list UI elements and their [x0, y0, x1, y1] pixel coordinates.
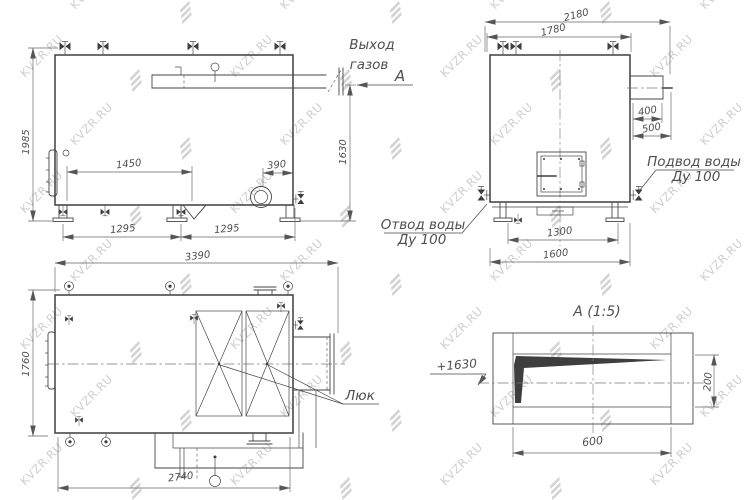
watermark-text: KVZR.RU	[437, 168, 485, 216]
water-outlet-valve-icon	[478, 187, 491, 201]
watermark-text: KVZR.RU	[697, 0, 745, 12]
svg-text:KVZR.RU: KVZR.RU	[17, 168, 65, 216]
svg-text:KVZR.RU: KVZR.RU	[277, 0, 325, 12]
svg-text:KVZR.RU: KVZR.RU	[647, 32, 695, 80]
watermark-text: KVZR.RU	[697, 236, 745, 284]
watermark-text: KVZR.RU	[277, 100, 325, 148]
dim-body-length: 2740	[167, 471, 194, 485]
gas-outlet-label-line1: Выход	[349, 37, 395, 53]
elevation-mark: +1630	[436, 356, 478, 374]
flanged-pipe-top	[254, 287, 276, 295]
elevation-callout: +1630	[430, 356, 486, 385]
svg-text:KVZR.RU: KVZR.RU	[67, 100, 115, 148]
sensor-icon	[211, 63, 219, 71]
detail-title: А (1:5)	[572, 304, 620, 320]
watermark-logo-icon	[124, 341, 147, 364]
watermark-logo-icon	[594, 409, 617, 432]
hatch-label: Люк	[344, 388, 376, 404]
watermark-logo-icon	[174, 273, 197, 296]
fitting-icon	[66, 433, 75, 446]
svg-text:KVZR.RU: KVZR.RU	[67, 236, 115, 284]
svg-text:KVZR.RU: KVZR.RU	[227, 440, 275, 488]
watermark-logo-icon	[544, 205, 567, 228]
svg-text:KVZR.RU: KVZR.RU	[67, 0, 115, 12]
svg-text:KVZR.RU: KVZR.RU	[697, 0, 745, 12]
watermark-logo-icon	[384, 273, 407, 296]
hatch-left	[196, 311, 242, 416]
dim-detail-width: 600	[581, 434, 603, 449]
watermark-logo-icon	[174, 409, 197, 432]
watermark-text: KVZR.RU	[487, 372, 535, 420]
watermark-text: KVZR.RU	[17, 32, 65, 80]
valve-icon	[190, 315, 198, 324]
dim-overall-length: 3390	[184, 250, 211, 264]
valve-icon	[188, 42, 199, 56]
svg-text:KVZR.RU: KVZR.RU	[487, 0, 535, 12]
svg-text:KVZR.RU: KVZR.RU	[437, 440, 485, 488]
valve-icon	[293, 318, 304, 330]
valve-icon	[608, 42, 619, 56]
watermark-text: KVZR.RU	[67, 100, 115, 148]
watermark-text: KVZR.RU	[227, 440, 275, 488]
water-inlet-label-line2: Ду 100	[671, 169, 721, 185]
section-arrow-label: А	[394, 67, 405, 85]
watermark-logo-icon	[334, 205, 357, 228]
svg-text:KVZR.RU: KVZR.RU	[17, 304, 65, 352]
watermark-text: KVZR.RU	[647, 304, 695, 352]
watermark-logo-icon	[544, 69, 567, 92]
watermark-text: KVZR.RU	[697, 100, 745, 148]
dim-flue-width: 400	[637, 104, 658, 118]
svg-text:KVZR.RU: KVZR.RU	[487, 236, 535, 284]
watermark-logo-icon	[384, 1, 407, 24]
gas-outlet-label-line2: газов	[350, 57, 389, 73]
valve-icon	[511, 42, 522, 56]
dim-height: 1985	[21, 129, 32, 154]
svg-text:KVZR.RU: KVZR.RU	[17, 440, 65, 488]
valve-icon	[101, 205, 110, 216]
water-inlet-callout: Подвод воды Ду 100	[640, 154, 741, 190]
water-outlet-label-line1: Отвод воды	[381, 217, 466, 233]
dim-detail-height: 200	[702, 372, 714, 392]
manhole-edge-top	[45, 332, 55, 389]
dim-valve-spacing: 1450	[116, 158, 142, 172]
dim-flue-axis-height: 1630	[338, 139, 349, 164]
dim-overall-width: 2180	[563, 7, 590, 24]
svg-text:KVZR.RU: KVZR.RU	[17, 32, 65, 80]
watermark-text: KVZR.RU	[437, 440, 485, 488]
top-view: 3390 1760 2740 Люк	[21, 250, 379, 492]
svg-text:KVZR.RU: KVZR.RU	[697, 100, 745, 148]
watermark-logo-icon	[544, 477, 567, 500]
detail-dimensions: 200 600	[513, 355, 719, 457]
svg-text:KVZR.RU: KVZR.RU	[697, 236, 745, 284]
watermark-text: KVZR.RU	[647, 32, 695, 80]
watermark-text: KVZR.RU	[487, 0, 535, 12]
svg-text:KVZR.RU: KVZR.RU	[487, 372, 535, 420]
svg-text:KVZR.RU: KVZR.RU	[277, 100, 325, 148]
weld-wedge	[514, 356, 667, 403]
watermark-logo-icon	[124, 477, 147, 500]
flue-duct-front	[627, 76, 672, 99]
watermark-logo-icon	[174, 1, 197, 24]
watermark-text: KVZR.RU	[17, 304, 65, 352]
watermark-logo-icon	[174, 137, 197, 160]
fitting-icon	[102, 433, 111, 446]
watermark-text: KVZR.RU	[227, 32, 275, 80]
svg-text:KVZR.RU: KVZR.RU	[487, 100, 535, 148]
svg-text:KVZR.RU: KVZR.RU	[647, 440, 695, 488]
dim-burner-offset: 390	[267, 159, 287, 172]
fitting-icon	[166, 282, 175, 295]
furnace-door	[537, 152, 586, 196]
valve-icon	[293, 191, 304, 204]
water-outlet-label-line2: Ду 100	[397, 232, 447, 248]
dim-body-width: 1780	[540, 22, 567, 39]
watermark-text: KVZR.RU	[67, 0, 115, 12]
svg-text:KVZR.RU: KVZR.RU	[437, 304, 485, 352]
dim-base-width: 1600	[542, 248, 569, 262]
watermark-layer: KVZR.RUKVZR.RUKVZR.RUKVZR.RUKVZR.RUKVZR.…	[0, 0, 750, 500]
dim-base-left: 1295	[110, 223, 136, 236]
water-inlet-valve-icon	[630, 187, 643, 201]
valve-icon	[275, 42, 286, 56]
svg-text:KVZR.RU: KVZR.RU	[67, 372, 115, 420]
gas-outlet-callout: Выход газов А	[349, 37, 413, 85]
dim-feet-span: 1300	[546, 226, 573, 240]
svg-text:KVZR.RU: KVZR.RU	[227, 32, 275, 80]
fitting-icon	[284, 282, 293, 295]
watermark-logo-icon	[384, 409, 407, 432]
hatch-right	[246, 311, 289, 416]
watermark-text: KVZR.RU	[277, 236, 325, 284]
watermark-text: KVZR.RU	[277, 0, 325, 12]
watermark-logo-icon	[334, 477, 357, 500]
watermark-logo-icon	[594, 137, 617, 160]
water-outlet-callout: Отвод воды Ду 100	[381, 204, 487, 248]
watermark-text: KVZR.RU	[437, 32, 485, 80]
valve-icon	[277, 303, 285, 312]
watermark-text: KVZR.RU	[17, 168, 65, 216]
watermark-text: KVZR.RU	[487, 236, 535, 284]
svg-text:KVZR.RU: KVZR.RU	[437, 168, 485, 216]
svg-text:KVZR.RU: KVZR.RU	[647, 304, 695, 352]
watermark-logo-icon	[594, 1, 617, 24]
dim-base-right: 1295	[214, 223, 240, 236]
watermark-text: KVZR.RU	[67, 372, 115, 420]
water-inlet-label-line1: Подвод воды	[647, 154, 741, 170]
watermark-text: KVZR.RU	[67, 236, 115, 284]
valve-icon	[498, 42, 509, 56]
svg-text:KVZR.RU: KVZR.RU	[437, 32, 485, 80]
watermark-text: KVZR.RU	[487, 100, 535, 148]
svg-text:KVZR.RU: KVZR.RU	[277, 236, 325, 284]
watermark-logo-icon	[334, 341, 357, 364]
watermark-text: KVZR.RU	[647, 440, 695, 488]
dim-depth: 1760	[21, 351, 32, 376]
watermark-logo-icon	[594, 273, 617, 296]
watermark-text: KVZR.RU	[17, 440, 65, 488]
watermark-text: KVZR.RU	[437, 304, 485, 352]
drawing-sheet: KVZR.RUKVZR.RUKVZR.RUKVZR.RUKVZR.RUKVZR.…	[0, 0, 750, 500]
watermark-logo-icon	[384, 137, 407, 160]
valve-icon	[514, 214, 522, 223]
watermark-logo-icon	[124, 69, 147, 92]
dim-flue-overall: 500	[641, 121, 662, 135]
fitting-icon	[65, 282, 74, 295]
valve-icon	[98, 42, 109, 56]
valve-icon	[59, 205, 68, 216]
valve-icon	[65, 316, 73, 325]
